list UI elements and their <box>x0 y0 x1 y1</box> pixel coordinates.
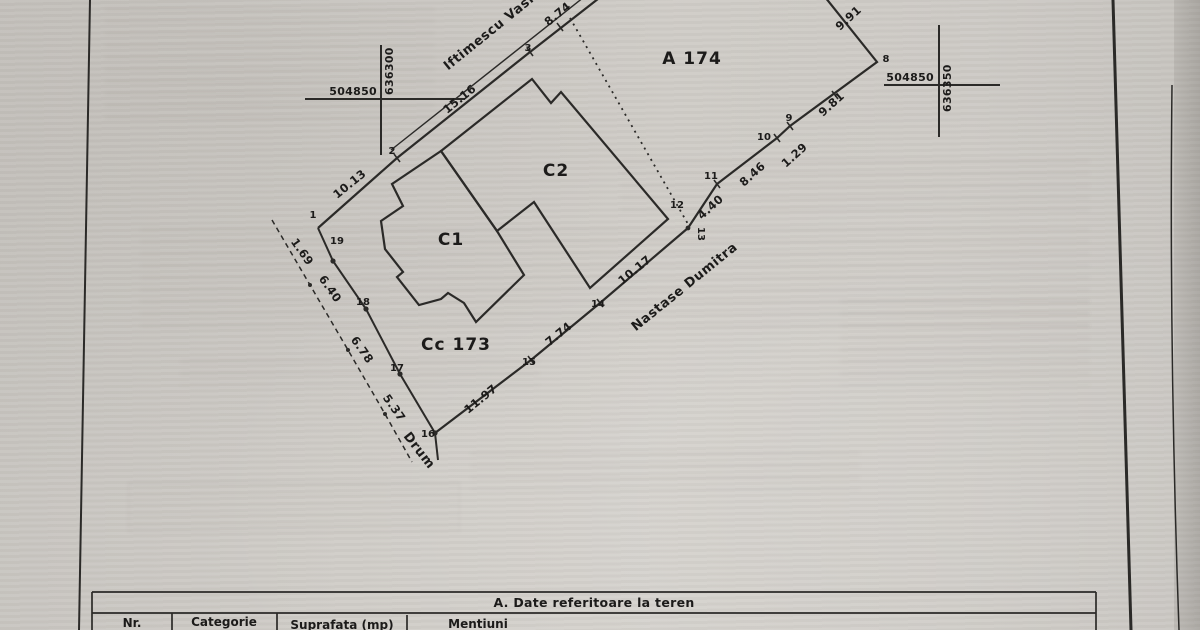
point-17: 17 <box>390 363 404 374</box>
measurement-labels: 10.13 15.16 8.74 9.91 9.81 1.29 8.46 4.4… <box>288 0 864 424</box>
point-2: 2 <box>389 146 396 157</box>
point-11: 11 <box>704 171 718 182</box>
measurement-9-10: 1.29 <box>778 140 810 170</box>
table-teren: A. Date referitoare la teren Nr. Categor… <box>92 592 1096 630</box>
table-col-mentiuni: Mentiuni <box>448 617 508 630</box>
cross-right-east-label: 504850 <box>886 71 934 84</box>
point-18: 18 <box>356 297 370 308</box>
measurement-7-8: 9.91 <box>832 3 864 33</box>
cross-left-north-label: 636300 <box>383 47 396 95</box>
boundary-left-road <box>318 228 438 460</box>
point-13: 13 <box>695 227 706 241</box>
table-col-nr: Nr. <box>123 616 142 630</box>
page-left-border <box>79 0 90 630</box>
measurement-19-1: 1.69 <box>288 235 317 268</box>
table-col-categorie: Categorie <box>191 615 257 629</box>
measurement-8-9: 9.81 <box>815 89 847 119</box>
zone-label-a174: A 174 <box>662 49 722 69</box>
point-15: 15 <box>522 357 536 368</box>
zone-label-c1: C1 <box>438 230 464 250</box>
table-section-title: A. Date referitoare la teren <box>493 595 694 610</box>
table-col-suprafata: Suprafata (mp) <box>290 618 393 630</box>
cross-left-east-label: 504850 <box>329 85 377 98</box>
parcel-boundary-lines <box>272 0 877 462</box>
cadastral-plan-svg: 504850 636300 504850 636350 A 174 C2 C1 … <box>0 0 1200 630</box>
measurement-15-16: 11.97 <box>461 381 500 416</box>
point-8: 8 <box>883 54 890 65</box>
cross-right-north-label: 636350 <box>941 64 954 112</box>
measurement-11-13: 4.40 <box>694 192 726 222</box>
point-number-labels: 1 2 3 8 9 10 11 12 13 14 15 16 17 18 19 <box>310 43 890 440</box>
street-name-top: Iftimescu Vasile <box>441 0 548 74</box>
measurement-1-2: 10.13 <box>330 166 369 201</box>
measurement-16-17: 5.37 <box>380 391 409 424</box>
zone-label-cc173: Cc 173 <box>421 335 491 355</box>
building-c2-outline <box>441 79 668 288</box>
boundary-ticks <box>394 23 838 364</box>
measurement-14-15: 7.74 <box>542 319 574 349</box>
point-1: 1 <box>310 210 317 221</box>
point-14: 14 <box>591 299 605 310</box>
measurement-10-11: 8.46 <box>736 159 768 189</box>
measurement-13-14: 10.17 <box>615 252 654 287</box>
point-9: 9 <box>786 113 793 124</box>
point-16: 16 <box>421 429 435 440</box>
coordinate-cross-right: 504850 636350 <box>884 25 1000 137</box>
page-right-border <box>1113 0 1131 630</box>
point-10: 10 <box>757 132 771 143</box>
measurement-18-19: 6.40 <box>316 272 345 305</box>
point-19: 19 <box>330 236 344 247</box>
boundary-dots <box>308 226 690 436</box>
zone-label-c2: C2 <box>543 161 569 181</box>
paper-edge-line <box>1171 85 1179 630</box>
point-3: 3 <box>525 43 532 54</box>
boundary-top-street <box>318 0 612 228</box>
measurement-17-18: 6.78 <box>348 333 377 366</box>
point-12: 12 <box>670 200 684 211</box>
